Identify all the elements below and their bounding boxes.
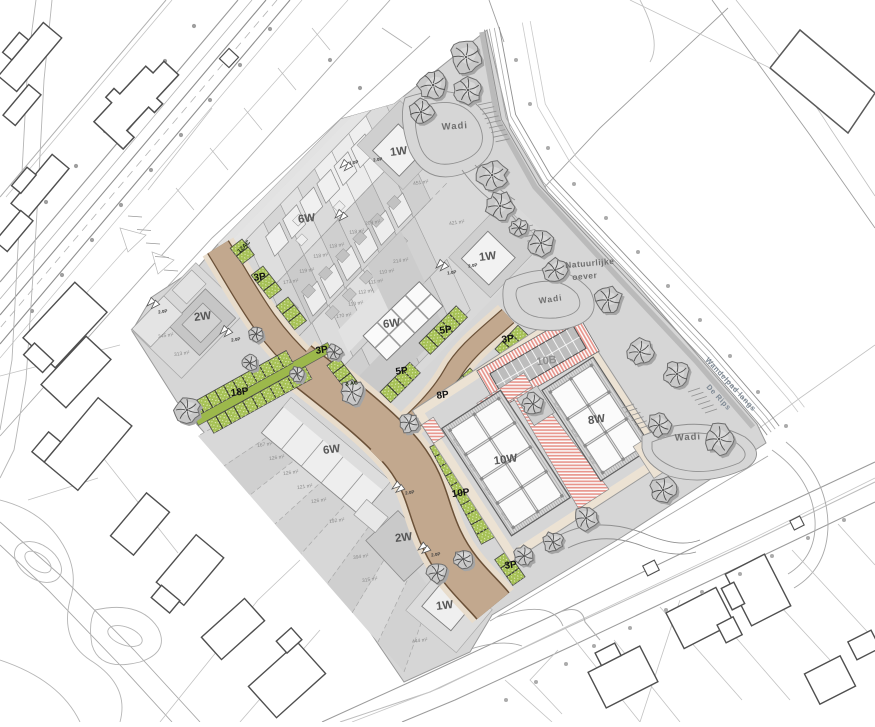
svg-text:Wadi: Wadi <box>674 431 701 443</box>
svg-text:3P: 3P <box>501 333 515 346</box>
svg-text:8W: 8W <box>587 413 606 427</box>
svg-text:6W: 6W <box>297 212 316 226</box>
svg-text:8P: 8P <box>436 389 450 402</box>
svg-text:2W: 2W <box>193 310 212 324</box>
svg-text:3P: 3P <box>504 559 518 572</box>
svg-text:3P: 3P <box>253 271 267 284</box>
svg-text:1W: 1W <box>478 250 497 264</box>
svg-text:Wadi: Wadi <box>441 120 468 133</box>
svg-text:6W: 6W <box>382 317 401 331</box>
svg-text:1W: 1W <box>389 145 408 159</box>
svg-text:6W: 6W <box>322 443 341 457</box>
svg-text:2W: 2W <box>394 531 413 545</box>
svg-text:3P: 3P <box>315 344 329 357</box>
svg-text:5P: 5P <box>395 365 409 378</box>
svg-text:5P: 5P <box>439 324 453 337</box>
svg-text:1W: 1W <box>435 599 454 613</box>
